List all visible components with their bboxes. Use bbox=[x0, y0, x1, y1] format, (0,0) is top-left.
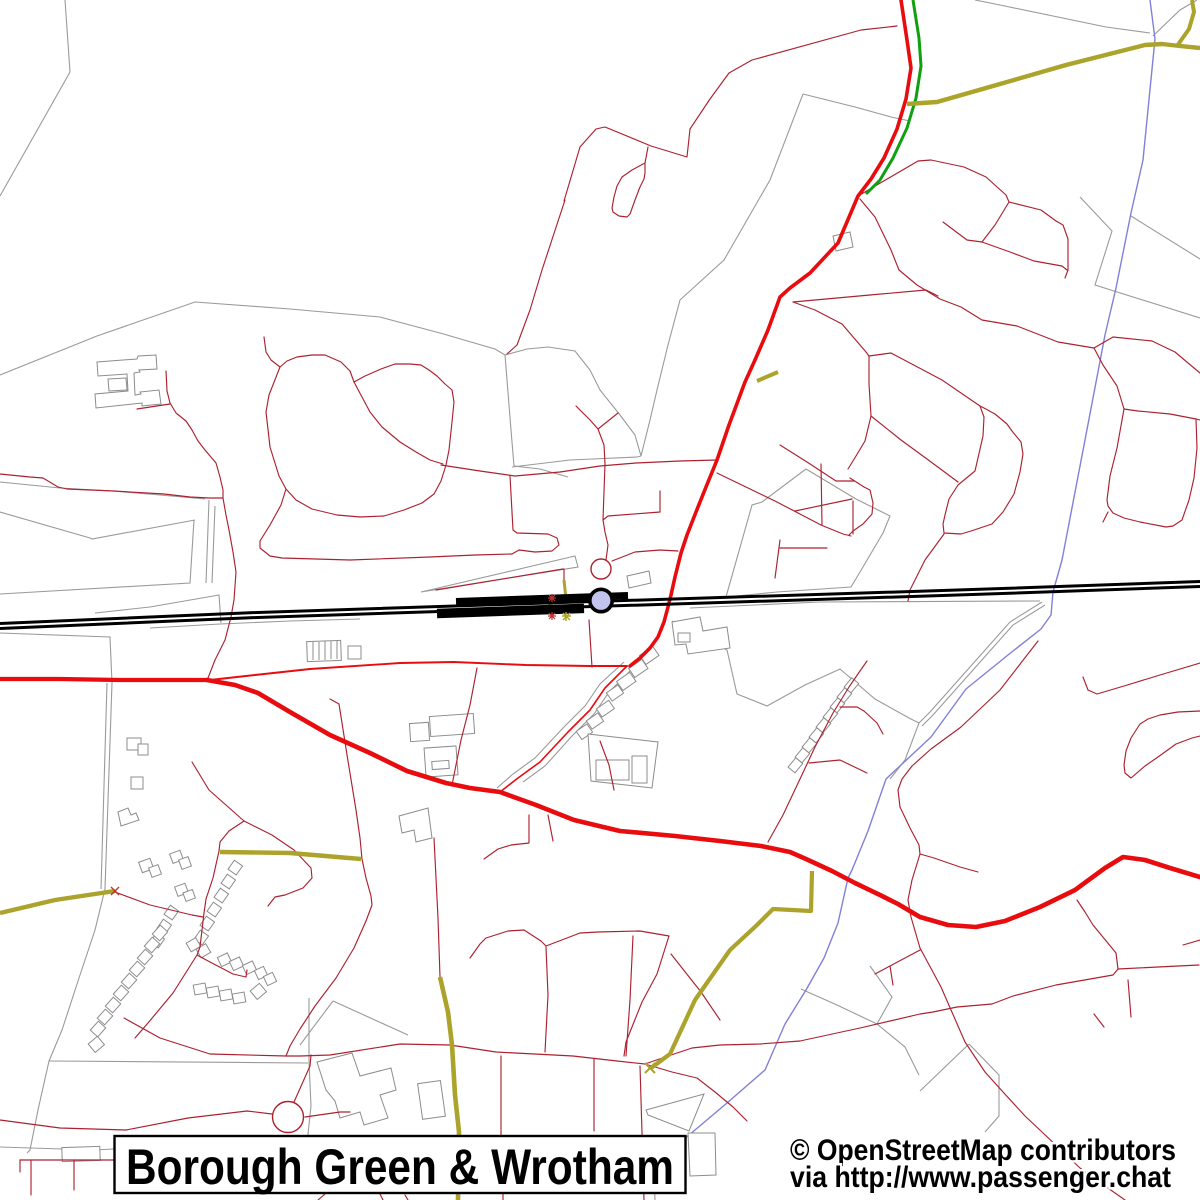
svg-text:via http://www.passenger.chat: via http://www.passenger.chat bbox=[790, 1161, 1171, 1194]
svg-text:Borough Green & Wrotham: Borough Green & Wrotham bbox=[126, 1139, 674, 1195]
